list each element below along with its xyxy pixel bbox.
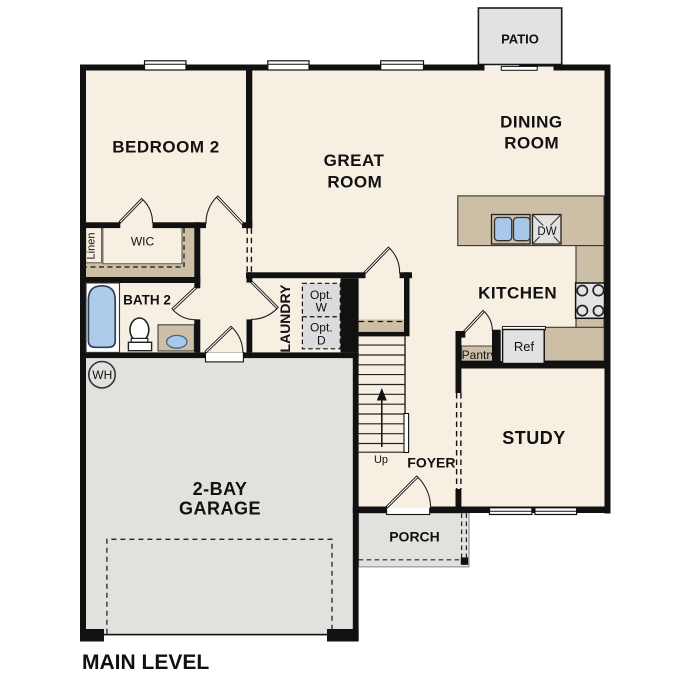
svg-text:ROOM: ROOM [327, 173, 382, 192]
svg-text:Ref: Ref [514, 339, 535, 354]
svg-text:MAIN LEVEL: MAIN LEVEL [82, 651, 209, 674]
svg-text:PORCH: PORCH [389, 528, 440, 544]
svg-text:W: W [316, 301, 328, 315]
svg-text:2-BAY: 2-BAY [193, 479, 248, 499]
svg-text:DW: DW [537, 226, 556, 238]
svg-text:Up: Up [374, 454, 388, 466]
svg-text:BEDROOM 2: BEDROOM 2 [112, 138, 219, 157]
svg-text:ROOM: ROOM [504, 134, 559, 153]
svg-text:KITCHEN: KITCHEN [478, 284, 557, 303]
svg-text:LAUNDRY: LAUNDRY [277, 284, 293, 353]
svg-text:Linen: Linen [86, 233, 98, 260]
svg-text:STUDY: STUDY [502, 428, 566, 448]
svg-text:PATIO: PATIO [501, 32, 539, 47]
svg-text:BATH 2: BATH 2 [123, 293, 171, 308]
svg-text:WIC: WIC [131, 235, 155, 249]
svg-text:Opt.: Opt. [310, 321, 333, 335]
svg-text:GREAT: GREAT [324, 151, 385, 170]
svg-text:D: D [317, 334, 326, 348]
svg-text:GARAGE: GARAGE [179, 499, 261, 519]
svg-text:Pantry: Pantry [462, 348, 497, 362]
svg-text:DINING: DINING [500, 113, 563, 132]
svg-text:WH: WH [92, 368, 112, 382]
svg-text:FOYER: FOYER [407, 455, 455, 471]
